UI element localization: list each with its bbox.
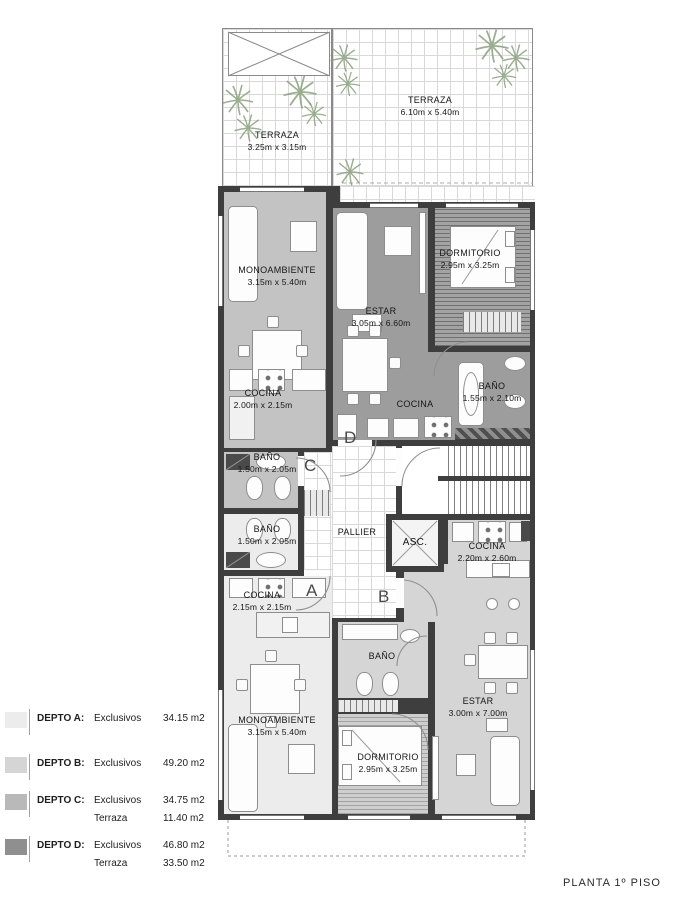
chair [506,682,518,694]
stool [282,617,298,633]
dining-table [478,645,528,679]
shelf [419,212,426,294]
dining-table [342,338,388,392]
label-cocina-d: COCINA [397,399,434,411]
pergola-crossed-box [228,32,330,76]
chair [267,316,279,328]
window [240,187,304,192]
appliance [492,563,510,577]
stair-flight-upper [448,446,530,476]
window [446,203,518,208]
window [530,650,535,790]
chair [506,632,518,644]
chair [389,357,401,369]
legend-item-depto-b: DEPTO B: Exclusivos 49.20 m2 [0,753,270,793]
bidet [382,672,399,696]
window [442,815,516,820]
label-cocina-c: COCINA2.00m x 2.15m [234,388,293,411]
label-bano-a: BAÑO1.50m x 2.05m [238,524,297,547]
side-table [456,754,476,776]
side-table [288,744,315,774]
floor-plan-page: TERRAZA3.25m x 3.15m TERRAZA6.10m x 5.40… [0,0,679,900]
window [530,230,535,310]
legend-item-depto-d: DEPTO D: Exclusivos 46.80 m2 Terraza 33.… [0,835,270,875]
fridge [367,418,389,438]
legend-label: Exclusivos [94,758,141,769]
pillow [505,231,515,247]
legend-name: DEPTO D: [37,840,85,851]
bidet [274,476,291,500]
legend-value: 49.20 m2 [163,758,205,769]
legend-label: Exclusivos [94,713,141,724]
toilet [246,476,263,500]
chair [294,679,306,691]
label-terraza-right: TERRAZA6.10m x 5.40m [401,95,460,118]
legend-swatch [5,839,27,855]
duct [226,552,250,568]
terrace-overhang [340,186,535,202]
fridge [452,522,474,542]
label-pallier: PALLIER [338,527,376,539]
legend-divider [29,836,30,862]
unit-marker-d: D [344,428,356,448]
closet-b [338,700,398,712]
chair [347,393,359,405]
door-gap-a [304,570,330,576]
legend-divider [29,754,30,780]
window [348,815,410,820]
chair [265,650,277,662]
unit-marker-a: A [306,581,317,601]
legend-name: DEPTO C: [37,795,85,806]
chair [484,682,496,694]
chair [238,345,250,357]
pillow [342,764,352,780]
label-monoambiente-c: MONOAMBIENTE3.15m x 5.40m [238,265,316,288]
legend-label: Terraza [94,858,127,869]
legend-item-depto-a: DEPTO A: Exclusivos 34.15 m2 [0,708,270,748]
legend-value: 46.80 m2 [163,840,205,851]
door-gap-b [396,578,404,608]
label-terraza-left: TERRAZA3.25m x 3.15m [248,130,307,153]
window [370,203,418,208]
legend-value: 33.50 m2 [163,858,205,869]
chair [296,345,308,357]
stove [424,416,452,438]
washbasin [400,629,420,643]
legend-divider [29,709,30,735]
chair [236,679,248,691]
label-cocina-b: COCINA2.20m x 2.60m [458,541,517,564]
pillow [505,267,515,283]
legend-item-depto-c: DEPTO C: Exclusivos 34.75 m2 Terraza 11.… [0,790,270,830]
label-bano-c: BAÑO1.50m x 2.05m [238,452,297,475]
legend-swatch [5,712,27,728]
closet-d [463,312,521,332]
legend-divider [29,791,30,817]
toilet [504,356,526,371]
stove [478,521,506,543]
stool [486,598,498,610]
legend-value: 34.75 m2 [163,795,205,806]
side-table [290,221,317,252]
dining-table [250,664,300,714]
duct [521,521,530,541]
legend-value: 11.40 m2 [163,813,204,824]
legend-label: Exclusivos [94,795,141,806]
sink-counter [292,369,326,391]
counter [342,624,398,640]
sink-counter [393,418,419,438]
shaft-hatch [455,428,530,439]
legend-name: DEPTO B: [37,758,85,769]
side-table [384,226,412,256]
legend-value: 34.15 m2 [163,713,205,724]
label-dormitorio-d: DORMITORIO2.95m x 3.25m [439,248,500,271]
unit-marker-b: B [378,587,389,607]
legend-swatch [5,794,27,810]
plan-title: PLANTA 1º PISO [563,877,661,889]
stool [508,598,520,610]
washbasin [256,552,286,568]
unit-marker-c: C [304,456,316,476]
corridor-b [404,572,435,622]
sofa [336,212,368,310]
legend-label: Terraza [94,813,127,824]
chair [484,632,496,644]
pillow [342,730,352,746]
ottoman [486,718,508,732]
label-asc: ASC. [403,536,428,549]
service-stair [304,490,330,516]
label-estar-b: ESTAR3.00m x 7.00m [449,696,508,719]
legend-name: DEPTO A: [37,713,84,724]
legend-label: Exclusivos [94,840,141,851]
label-estar-d: ESTAR3.05m x 6.60m [352,306,411,329]
toilet [356,672,373,696]
legend-swatch [5,757,27,773]
door-gap-stair [396,448,402,486]
chair [464,654,476,666]
label-bano-b: BAÑO [369,651,396,663]
label-dormitorio-b: DORMITORIO2.95m x 3.25m [357,752,418,775]
sofa [490,736,520,806]
window [218,216,223,306]
label-cocina-a: COCINA2.15m x 2.15m [233,590,292,613]
shelf [432,736,439,800]
chair [369,393,381,405]
stair-divider [438,476,530,481]
label-bano-d: BAÑO1.55m x 2.10m [463,381,522,404]
stair-flight-lower [448,481,530,514]
